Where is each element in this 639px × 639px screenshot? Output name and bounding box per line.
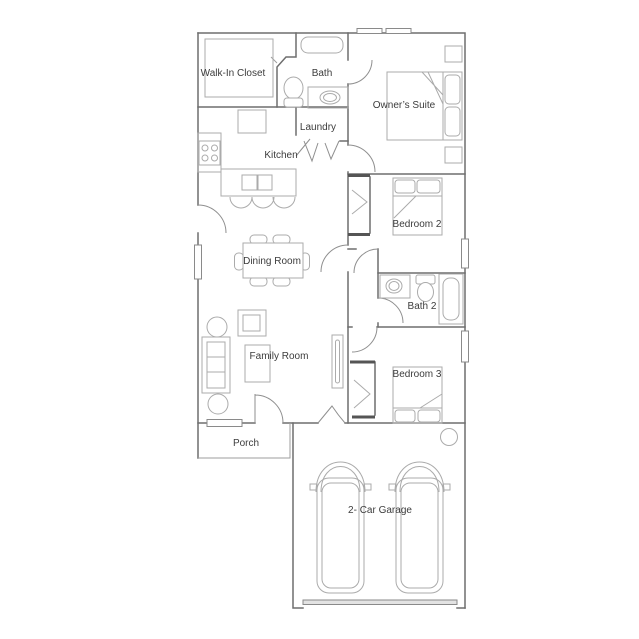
room-label-dining-room: Dining Room xyxy=(243,256,301,267)
bedroom3-closet-rod-icon xyxy=(354,380,370,408)
range-stove-icon xyxy=(198,133,221,172)
bar-stools-icon xyxy=(230,197,295,208)
wall-bedroom2-bottom xyxy=(348,249,378,327)
kitchen-island-icon xyxy=(221,169,296,196)
armchair-icon xyxy=(238,310,266,336)
door-side-entry xyxy=(198,205,226,233)
door-laundry-hall xyxy=(296,139,310,156)
car-icon xyxy=(310,462,371,593)
door-hall-entry xyxy=(321,245,348,272)
door-owners-suite xyxy=(348,145,375,172)
door-swings xyxy=(198,57,403,423)
window-bedroom3 xyxy=(462,331,469,362)
door-bedroom3 xyxy=(352,327,377,352)
door-laundry-bifold xyxy=(304,141,339,161)
door-owners-bath xyxy=(348,60,372,84)
room-label-garage: 2- Car Garage xyxy=(348,505,412,516)
room-label-bedroom-3: Bedroom 3 xyxy=(393,369,442,380)
door-bedroom2 xyxy=(354,249,378,273)
water-heater-icon xyxy=(441,429,458,446)
room-label-bath-2: Bath 2 xyxy=(408,301,437,312)
room-label-kitchen: Kitchen xyxy=(264,150,297,161)
window-owners-suite-2 xyxy=(386,29,411,34)
window-family xyxy=(207,420,242,427)
room-label-bath: Bath xyxy=(312,68,333,79)
floor-plan-page: Walk-In Closet Bath Owner’s Suite Laundr… xyxy=(0,0,639,639)
room-label-walk-in-closet: Walk-In Closet xyxy=(201,68,266,79)
garage-door xyxy=(303,600,457,605)
car-icon-2 xyxy=(389,462,450,593)
closet2-caps xyxy=(348,176,370,235)
bath2-toilet-icon xyxy=(416,275,435,302)
toilet-icon xyxy=(284,77,303,107)
door-closet-jamb xyxy=(271,57,277,63)
bathtub-icon xyxy=(301,37,343,53)
door-front xyxy=(255,394,283,423)
window-owners-suite-1 xyxy=(357,29,382,34)
window-bedroom2 xyxy=(462,239,469,268)
bath2-tub-icon xyxy=(439,274,463,324)
sofa-icon xyxy=(202,337,230,393)
room-label-porch: Porch xyxy=(233,438,259,449)
room-labels: Walk-In Closet Bath Owner’s Suite Laundr… xyxy=(201,68,442,516)
floor-plan-drawing: Walk-In Closet Bath Owner’s Suite Laundr… xyxy=(0,0,639,639)
window-dining xyxy=(195,245,202,279)
door-bath2 xyxy=(378,298,403,323)
bath2-vanity-icon xyxy=(380,275,410,298)
room-label-family-room: Family Room xyxy=(250,351,309,362)
tv-icon xyxy=(332,335,343,388)
room-label-bedroom-2: Bedroom 2 xyxy=(393,219,442,230)
refrigerator-icon xyxy=(238,110,266,133)
room-label-owners-suite: Owner’s Suite xyxy=(373,100,436,111)
bedroom2-closet-rod-icon xyxy=(352,190,367,214)
room-label-laundry: Laundry xyxy=(300,122,336,133)
vanity-sink-icon xyxy=(308,87,348,108)
closet3-caps xyxy=(350,362,375,417)
door-garage-entry xyxy=(318,406,345,423)
